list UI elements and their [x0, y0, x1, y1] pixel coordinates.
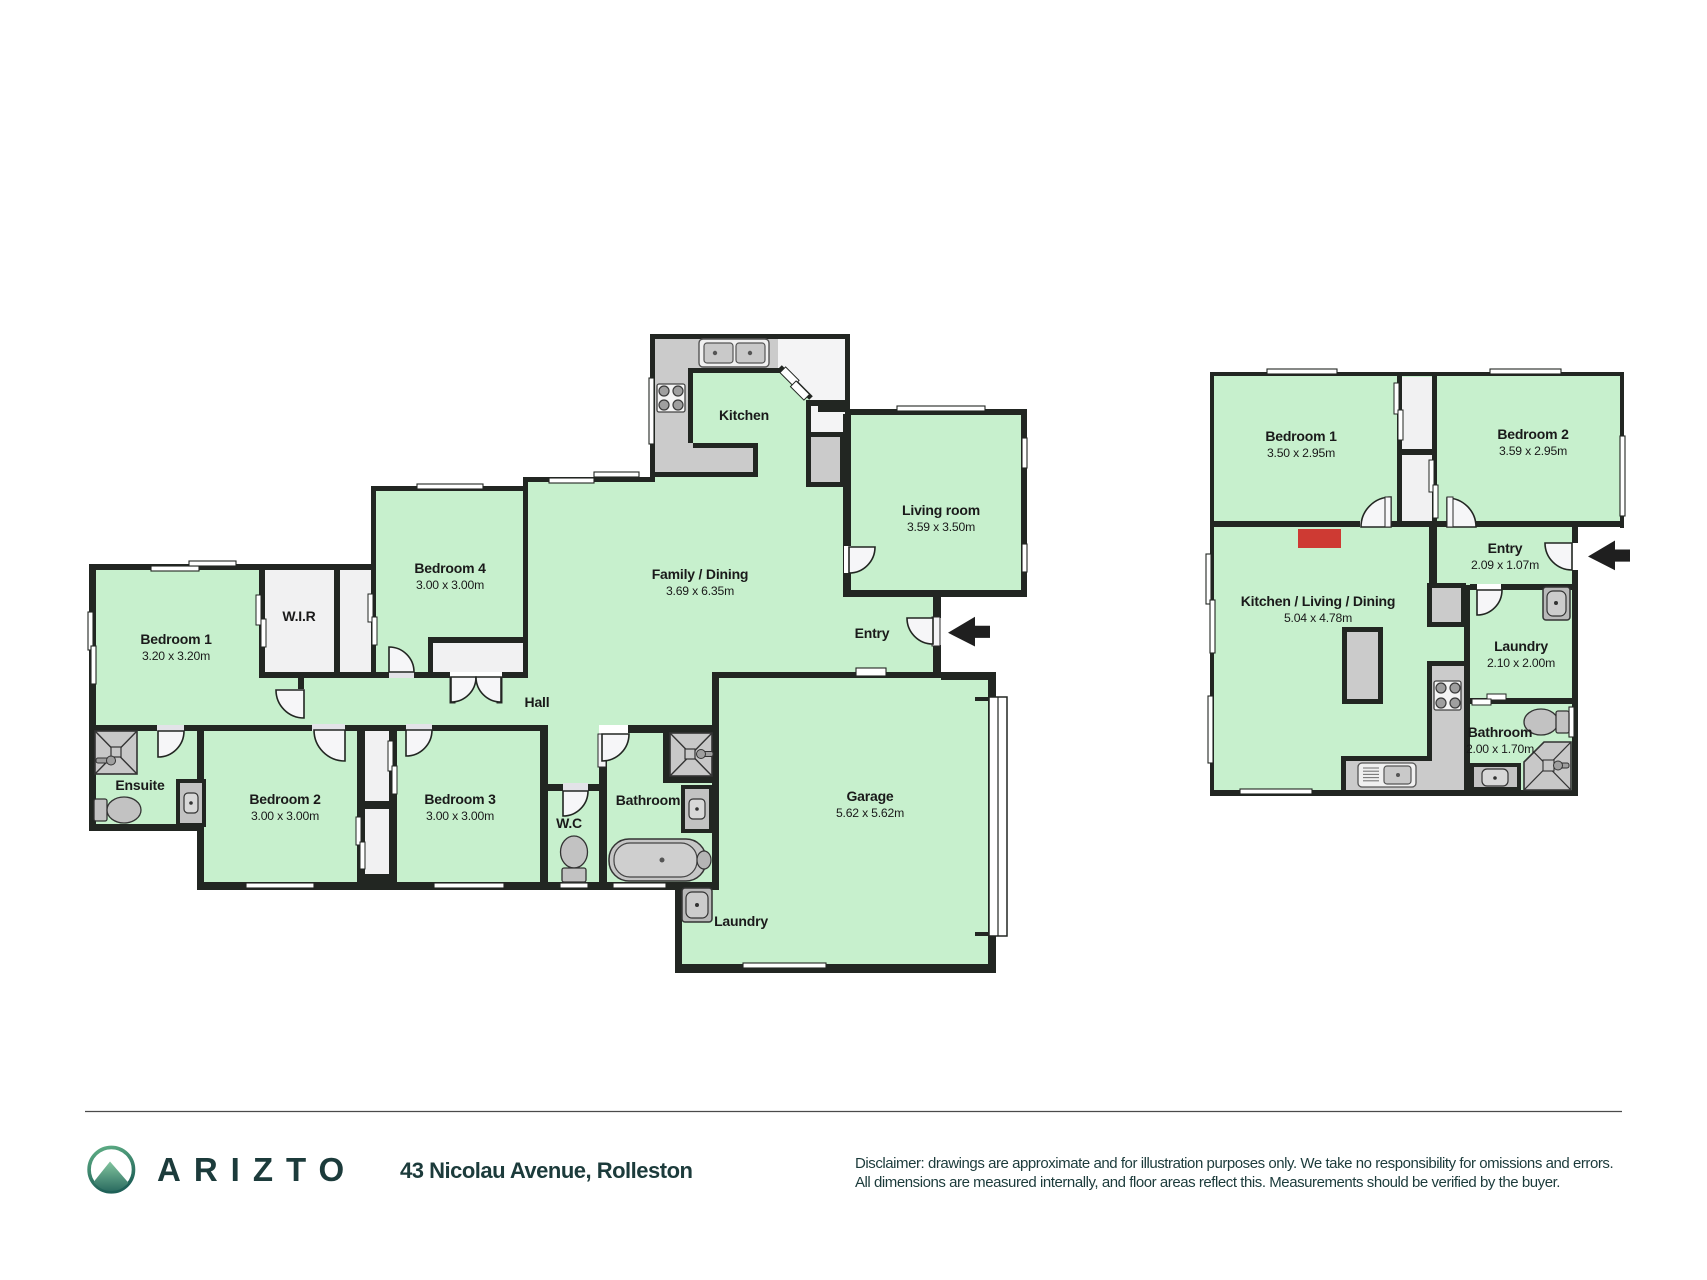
svg-text:5.62 x 5.62m: 5.62 x 5.62m — [836, 806, 904, 820]
svg-text:3.69 x 6.35m: 3.69 x 6.35m — [666, 584, 734, 598]
svg-text:Laundry: Laundry — [1494, 638, 1548, 654]
svg-text:Hall: Hall — [525, 694, 550, 710]
svg-text:Kitchen / Living / Dining: Kitchen / Living / Dining — [1241, 593, 1395, 609]
svg-text:Kitchen: Kitchen — [719, 407, 769, 423]
svg-text:3.00 x 3.00m: 3.00 x 3.00m — [416, 578, 484, 592]
svg-text:2.10 x 2.00m: 2.10 x 2.00m — [1487, 656, 1555, 670]
svg-text:Bedroom 2: Bedroom 2 — [1497, 426, 1569, 442]
svg-text:Ensuite: Ensuite — [115, 777, 165, 793]
svg-text:Family / Dining: Family / Dining — [652, 566, 749, 582]
svg-text:Entry: Entry — [1488, 540, 1523, 556]
svg-text:All dimensions are measured in: All dimensions are measured internally, … — [855, 1174, 1560, 1191]
svg-text:Bedroom 2: Bedroom 2 — [249, 791, 321, 807]
svg-text:2.09 x 1.07m: 2.09 x 1.07m — [1471, 558, 1539, 572]
svg-text:W.C: W.C — [556, 815, 582, 831]
svg-text:Bedroom 1: Bedroom 1 — [1265, 428, 1337, 444]
svg-text:Laundry: Laundry — [714, 913, 768, 929]
svg-text:3.00 x 3.00m: 3.00 x 3.00m — [251, 809, 319, 823]
svg-text:3.59 x 2.95m: 3.59 x 2.95m — [1499, 444, 1567, 458]
svg-text:3.50 x 2.95m: 3.50 x 2.95m — [1267, 446, 1335, 460]
svg-text:Disclaimer: drawings are appro: Disclaimer: drawings are approximate and… — [855, 1155, 1613, 1172]
svg-text:3.59 x 3.50m: 3.59 x 3.50m — [907, 520, 975, 534]
svg-text:Bedroom 3: Bedroom 3 — [424, 791, 496, 807]
svg-text:3.20 x 3.20m: 3.20 x 3.20m — [142, 649, 210, 663]
svg-text:Entry: Entry — [855, 625, 890, 641]
svg-text:ARIZTO: ARIZTO — [157, 1151, 357, 1188]
svg-text:3.00 x 3.00m: 3.00 x 3.00m — [426, 809, 494, 823]
svg-text:Living room: Living room — [902, 502, 980, 518]
svg-text:W.I.R: W.I.R — [282, 608, 315, 624]
svg-text:Bedroom 1: Bedroom 1 — [140, 631, 212, 647]
svg-text:5.04 x 4.78m: 5.04 x 4.78m — [1284, 611, 1352, 625]
svg-text:Garage: Garage — [846, 788, 893, 804]
svg-text:43 Nicolau Avenue, Rolleston: 43 Nicolau Avenue, Rolleston — [400, 1158, 693, 1183]
svg-text:Bedroom 4: Bedroom 4 — [414, 560, 486, 576]
svg-text:Bathroom: Bathroom — [1468, 724, 1533, 740]
svg-text:2.00 x 1.70m: 2.00 x 1.70m — [1466, 742, 1534, 756]
svg-text:Bathroom: Bathroom — [616, 792, 681, 808]
